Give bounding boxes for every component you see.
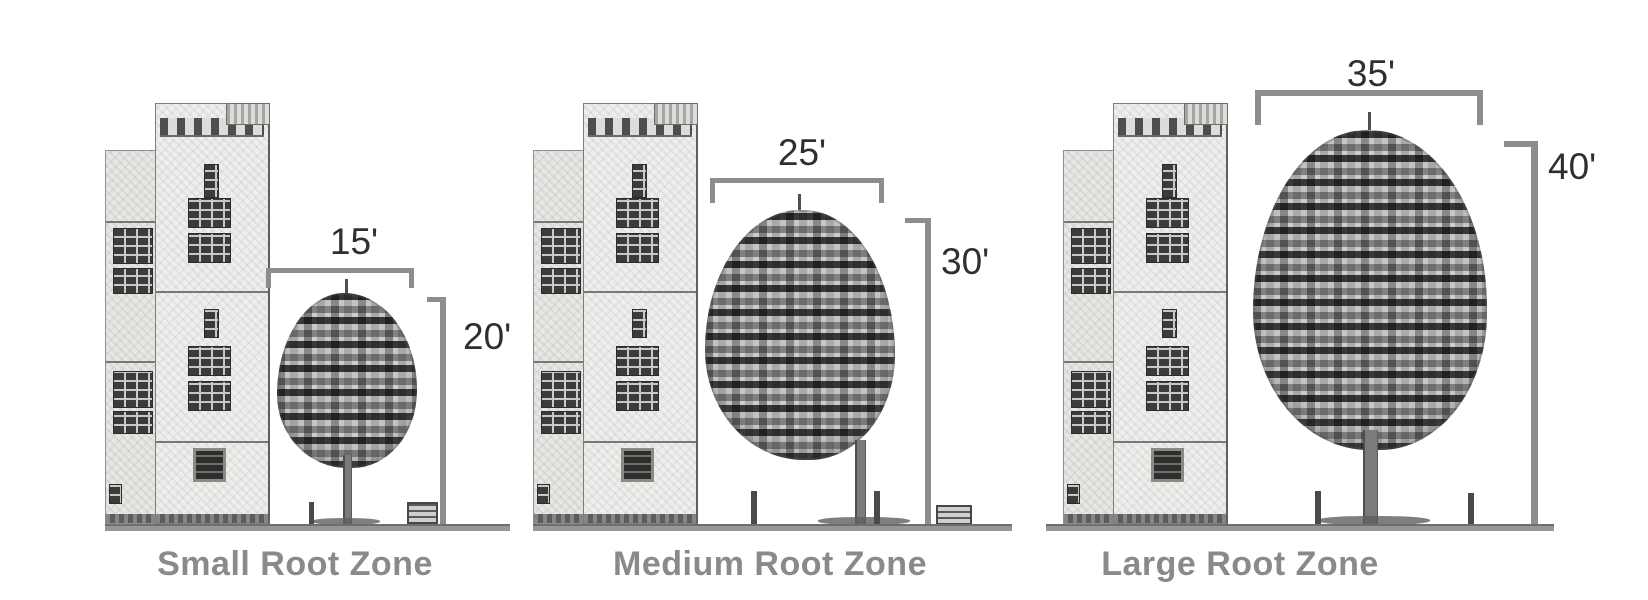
bollard	[1315, 491, 1321, 524]
window	[616, 233, 659, 263]
window	[1071, 371, 1111, 408]
tree-crown	[1253, 130, 1487, 450]
panel-caption: Medium Root Zone	[613, 547, 927, 581]
trash-bin	[407, 502, 438, 524]
building-tower	[583, 103, 698, 524]
building-illustration	[533, 103, 698, 524]
window	[632, 164, 647, 198]
window	[1071, 411, 1111, 434]
ground-line	[533, 524, 1012, 531]
window	[204, 309, 219, 338]
window	[109, 484, 122, 504]
bollard	[751, 491, 757, 524]
tree-trunk	[343, 455, 352, 525]
building-annex	[105, 150, 158, 524]
canopy-width-bracket	[266, 268, 414, 288]
window	[188, 233, 231, 263]
tree-trunk	[855, 440, 866, 525]
window	[113, 228, 153, 264]
window	[1146, 346, 1189, 376]
window	[188, 346, 231, 376]
tree-height-label: 20'	[463, 318, 511, 355]
window	[113, 268, 153, 294]
window	[204, 164, 219, 198]
tree-crown	[277, 293, 417, 468]
bollard	[1468, 493, 1474, 524]
window	[541, 228, 581, 264]
tree-trunk	[1363, 430, 1378, 525]
door	[1151, 448, 1184, 482]
window	[113, 411, 153, 434]
canopy-width-bracket	[710, 178, 884, 203]
door	[621, 448, 654, 482]
building-annex	[1063, 150, 1116, 524]
chimney	[226, 103, 270, 125]
trash-bin	[936, 505, 972, 525]
window	[616, 381, 659, 411]
window	[541, 268, 581, 294]
tree-height-label: 40'	[1548, 148, 1596, 185]
canopy-width-label: 35'	[1347, 55, 1395, 92]
root-zone-diagram: 15' 20' Small Root Zone	[0, 0, 1648, 600]
tree-height-label: 30'	[941, 243, 989, 280]
building-illustration	[105, 103, 270, 524]
canopy-width-bracket	[1255, 90, 1483, 125]
window	[541, 411, 581, 434]
ground-line	[1046, 524, 1554, 531]
ground-line	[105, 524, 510, 531]
bollard	[874, 491, 880, 524]
window	[1146, 233, 1189, 263]
chimney	[1184, 103, 1228, 125]
window	[632, 309, 647, 338]
window	[113, 371, 153, 408]
building-tower	[1113, 103, 1228, 524]
canopy-width-label: 25'	[778, 134, 826, 171]
window	[537, 484, 550, 504]
building-illustration	[1063, 103, 1228, 524]
building-tower	[155, 103, 270, 524]
window	[1067, 484, 1080, 504]
door	[193, 448, 226, 482]
bollard	[309, 502, 314, 524]
window	[1146, 198, 1189, 228]
panel-caption: Small Root Zone	[157, 547, 433, 581]
window	[616, 346, 659, 376]
window	[188, 198, 231, 228]
window	[1162, 309, 1177, 338]
window	[1162, 164, 1177, 198]
tree-height-bracket	[1504, 141, 1538, 525]
chimney	[654, 103, 698, 125]
building-annex	[533, 150, 586, 524]
window	[1071, 228, 1111, 264]
window	[1071, 268, 1111, 294]
panel-caption: Large Root Zone	[1101, 547, 1379, 581]
window	[188, 381, 231, 411]
window	[616, 198, 659, 228]
tree-height-bracket	[905, 218, 931, 525]
window	[541, 371, 581, 408]
window	[1146, 381, 1189, 411]
tree-crown	[705, 210, 895, 460]
canopy-width-label: 15'	[330, 223, 378, 260]
tree-height-bracket	[427, 297, 446, 525]
